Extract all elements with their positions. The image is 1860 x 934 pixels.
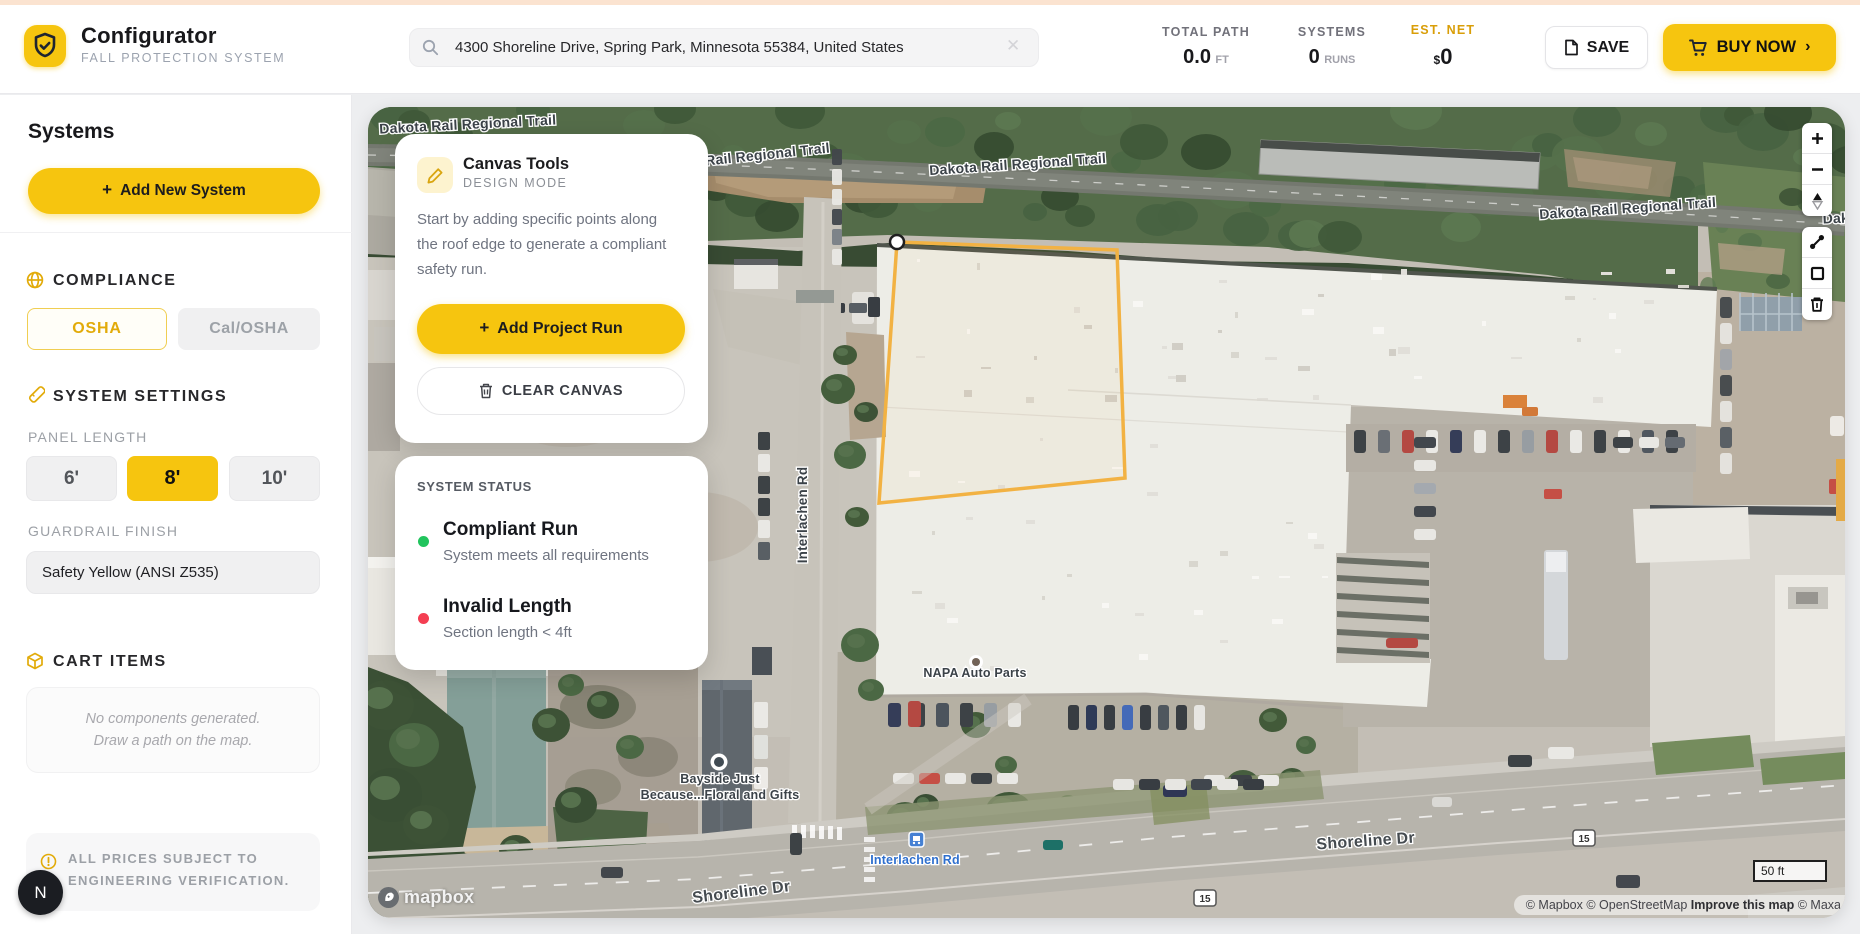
svg-text:Because...Floral and Gifts: Because...Floral and Gifts	[641, 788, 800, 802]
svg-text:15: 15	[1578, 834, 1590, 845]
svg-text:Bayside Just: Bayside Just	[680, 772, 760, 786]
svg-text:Interlachen Rd: Interlachen Rd	[870, 853, 960, 867]
svg-text:15: 15	[1199, 894, 1211, 905]
svg-text:Interlachen Rd: Interlachen Rd	[795, 467, 810, 564]
svg-text:NAPA Auto Parts: NAPA Auto Parts	[923, 666, 1026, 680]
